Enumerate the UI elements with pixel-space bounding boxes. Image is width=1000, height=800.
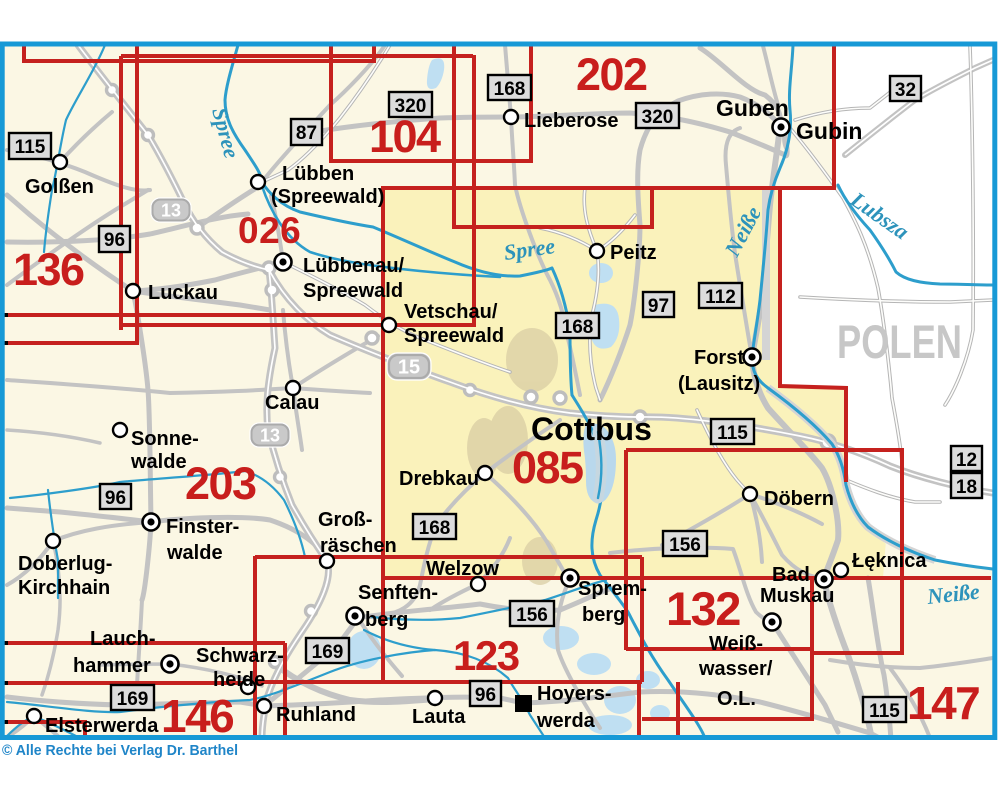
svg-text:Lübben: Lübben (282, 163, 354, 185)
svg-text:Doberlug-: Doberlug- (18, 553, 112, 575)
svg-text:Drebkau: Drebkau (399, 468, 479, 490)
svg-text:169: 169 (312, 642, 344, 663)
svg-text:168: 168 (419, 518, 451, 539)
svg-text:115: 115 (15, 137, 46, 158)
svg-text:(Spreewald): (Spreewald) (271, 186, 384, 208)
svg-text:168: 168 (494, 79, 526, 100)
svg-text:Finster-: Finster- (166, 516, 239, 538)
svg-text:97: 97 (648, 296, 669, 317)
svg-text:13: 13 (161, 201, 181, 221)
svg-text:112: 112 (705, 287, 736, 308)
svg-text:Peitz: Peitz (610, 242, 657, 264)
svg-text:156: 156 (669, 535, 701, 556)
svg-text:Luckau: Luckau (148, 282, 218, 304)
svg-text:Lauch-: Lauch- (90, 628, 156, 650)
svg-text:Groß-: Groß- (318, 509, 372, 531)
svg-text:96: 96 (475, 685, 496, 706)
svg-text:156: 156 (516, 605, 548, 626)
svg-text:96: 96 (105, 488, 126, 509)
svg-text:Bad: Bad (772, 564, 810, 586)
svg-text:Sonne-: Sonne- (131, 428, 199, 450)
svg-text:Calau: Calau (265, 392, 319, 414)
svg-text:berg: berg (582, 604, 625, 626)
svg-text:Lübbenau/: Lübbenau/ (303, 255, 405, 277)
svg-text:13: 13 (260, 426, 280, 446)
svg-text:Hoyers-: Hoyers- (537, 683, 611, 705)
svg-text:POLEN: POLEN (837, 315, 962, 368)
svg-text:146: 146 (161, 690, 233, 742)
svg-text:202: 202 (576, 49, 647, 100)
svg-text:96: 96 (104, 230, 125, 251)
svg-text:werda: werda (536, 710, 596, 732)
svg-text:320: 320 (642, 107, 674, 128)
svg-text:räschen: räschen (320, 535, 397, 557)
svg-text:18: 18 (956, 477, 977, 498)
svg-text:Welzow: Welzow (426, 558, 499, 580)
svg-text:Lauta: Lauta (412, 706, 466, 728)
svg-text:147: 147 (907, 677, 979, 729)
svg-text:026: 026 (238, 210, 301, 251)
svg-text:walde: walde (130, 451, 187, 473)
svg-text:Lieberose: Lieberose (524, 110, 618, 132)
svg-text:Gubin: Gubin (796, 118, 862, 144)
svg-text:wasser/: wasser/ (698, 658, 773, 680)
svg-text:Forst: Forst (694, 347, 744, 369)
svg-text:Guben: Guben (716, 95, 789, 121)
svg-text:heide: heide (213, 669, 265, 691)
svg-text:12: 12 (956, 450, 977, 471)
svg-text:115: 115 (717, 423, 748, 444)
svg-text:Łęknica: Łęknica (852, 550, 927, 572)
svg-text:085: 085 (512, 442, 583, 493)
svg-text:115: 115 (869, 701, 900, 722)
svg-text:123: 123 (453, 632, 519, 679)
svg-text:136: 136 (13, 244, 84, 295)
svg-text:104: 104 (369, 111, 441, 162)
svg-text:(Lausitz): (Lausitz) (678, 373, 760, 395)
svg-text:Ruhland: Ruhland (276, 704, 356, 726)
svg-text:Senften-: Senften- (358, 582, 438, 604)
svg-text:O.L.: O.L. (717, 688, 756, 710)
svg-text:Döbern: Döbern (764, 488, 834, 510)
svg-text:203: 203 (185, 458, 256, 509)
svg-text:Vetschau/: Vetschau/ (404, 301, 498, 323)
svg-text:32: 32 (895, 80, 916, 101)
svg-text:Spreewald: Spreewald (404, 325, 504, 347)
svg-text:Golßen: Golßen (25, 176, 94, 198)
svg-text:hammer: hammer (73, 655, 151, 677)
svg-text:Sprem-: Sprem- (578, 578, 647, 600)
svg-text:Schwarz-: Schwarz- (196, 645, 284, 667)
svg-text:15: 15 (398, 357, 420, 379)
svg-text:berg: berg (365, 609, 408, 631)
svg-text:© Alle Rechte bei Verlag Dr. B: © Alle Rechte bei Verlag Dr. Barthel (2, 742, 238, 759)
svg-text:169: 169 (117, 689, 149, 710)
svg-text:132: 132 (666, 582, 740, 635)
svg-text:168: 168 (562, 317, 594, 338)
svg-text:Spreewald: Spreewald (303, 280, 403, 302)
svg-text:Elsterwerda: Elsterwerda (45, 715, 159, 737)
svg-text:Weiß-: Weiß- (709, 633, 763, 655)
svg-text:Muskau: Muskau (760, 585, 834, 607)
svg-text:walde: walde (166, 542, 223, 564)
svg-text:87: 87 (296, 123, 317, 144)
svg-text:Kirchhain: Kirchhain (18, 577, 110, 599)
